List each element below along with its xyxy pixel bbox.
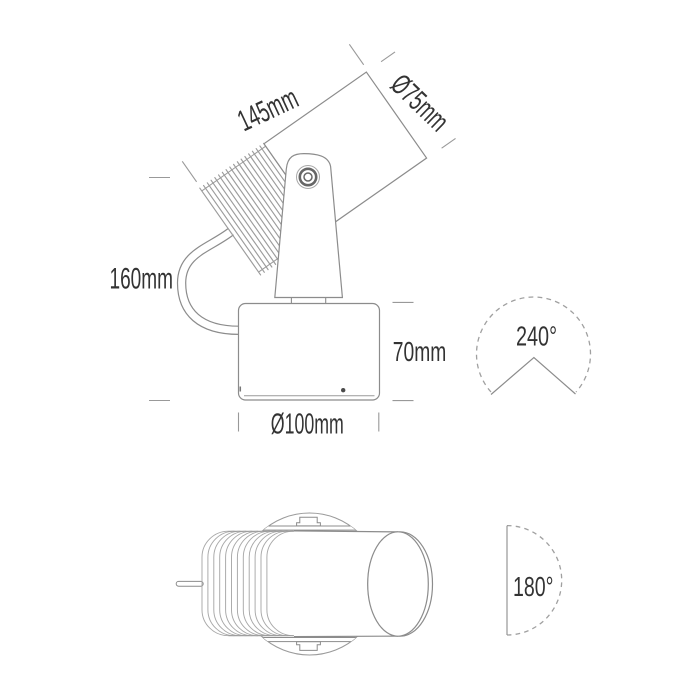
svg-text:160mm: 160mm	[110, 263, 174, 296]
svg-text:240°: 240°	[516, 321, 557, 352]
svg-text:180°: 180°	[513, 571, 554, 602]
svg-text:Ø100mm: Ø100mm	[271, 408, 344, 440]
svg-text:70mm: 70mm	[393, 336, 447, 367]
